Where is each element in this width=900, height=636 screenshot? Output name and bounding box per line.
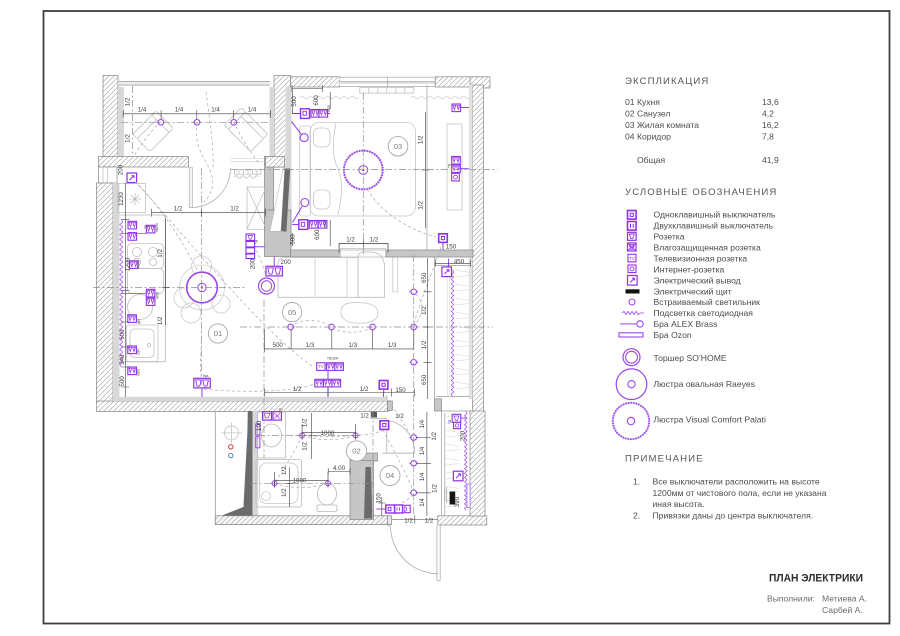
svg-text:1.: 1. bbox=[633, 477, 640, 487]
svg-text:390: 390 bbox=[454, 496, 461, 507]
svg-text:ТВ1300: ТВ1300 bbox=[327, 357, 338, 361]
svg-text:1/2: 1/2 bbox=[370, 237, 379, 244]
svg-text:1/2: 1/2 bbox=[174, 205, 183, 212]
svg-text:1230: 1230 bbox=[118, 192, 125, 206]
svg-text:05: 05 bbox=[288, 308, 296, 317]
svg-text:ТВ: ТВ bbox=[448, 420, 452, 424]
svg-text:1/2: 1/2 bbox=[293, 386, 302, 393]
svg-text:1/2: 1/2 bbox=[404, 517, 413, 524]
svg-text:1/2: 1/2 bbox=[281, 466, 288, 475]
svg-text:дух: дух bbox=[137, 319, 141, 324]
svg-text:Подсветка светодиодная: Подсветка светодиодная bbox=[654, 308, 754, 318]
svg-text:Влагозащищенная розетка: Влагозащищенная розетка bbox=[654, 242, 761, 252]
svg-text:1/2: 1/2 bbox=[395, 413, 404, 420]
svg-text:1/4: 1/4 bbox=[248, 106, 257, 113]
svg-text:Общая: Общая bbox=[637, 155, 665, 165]
svg-text:150: 150 bbox=[446, 243, 457, 250]
svg-text:Интернет-розетка: Интернет-розетка bbox=[654, 264, 725, 274]
svg-text:1/2: 1/2 bbox=[421, 306, 428, 315]
svg-text:h400: h400 bbox=[323, 221, 327, 228]
svg-text:16,2: 16,2 bbox=[762, 120, 779, 130]
svg-text:h300: h300 bbox=[137, 369, 141, 376]
svg-text:h450: h450 bbox=[156, 292, 160, 299]
svg-text:вл: вл bbox=[279, 408, 283, 412]
svg-text:1/4: 1/4 bbox=[419, 498, 426, 507]
svg-text:2.: 2. bbox=[633, 510, 640, 520]
svg-text:13,6: 13,6 bbox=[762, 97, 779, 107]
svg-text:1/4: 1/4 bbox=[175, 106, 184, 113]
svg-text:4.00: 4.00 bbox=[333, 465, 346, 472]
svg-text:500: 500 bbox=[290, 234, 297, 245]
svg-text:Метиева А.: Метиева А. bbox=[822, 594, 867, 604]
svg-text:Розетка: Розетка bbox=[654, 232, 685, 242]
svg-text:02 Санузел: 02 Санузел bbox=[625, 109, 670, 119]
svg-text:200: 200 bbox=[281, 259, 292, 266]
svg-text:1/4: 1/4 bbox=[419, 446, 426, 455]
svg-text:бра: бра bbox=[203, 374, 209, 378]
svg-text:100: 100 bbox=[256, 420, 263, 431]
svg-text:600: 600 bbox=[313, 95, 320, 106]
svg-text:200: 200 bbox=[250, 258, 257, 269]
svg-text:01 Кухня: 01 Кухня bbox=[625, 97, 660, 107]
svg-text:1/4: 1/4 bbox=[419, 419, 426, 428]
svg-text:ТВ: ТВ bbox=[448, 164, 452, 168]
svg-text:1/2: 1/2 bbox=[418, 135, 425, 144]
svg-text:ПРИМЕЧАНИЕ: ПРИМЕЧАНИЕ bbox=[625, 454, 704, 465]
svg-text:Бра ALEX Brass: Бра ALEX Brass bbox=[654, 319, 718, 329]
svg-text:Одноклавишный выключатель: Одноклавишный выключатель bbox=[654, 210, 776, 220]
svg-text:Люстра овальная Raeyes: Люстра овальная Raeyes bbox=[654, 379, 756, 389]
svg-text:03 Жилая комната: 03 Жилая комната bbox=[625, 120, 699, 130]
svg-text:600: 600 bbox=[314, 229, 321, 240]
svg-text:1/2: 1/2 bbox=[431, 431, 438, 440]
svg-text:1/2: 1/2 bbox=[281, 488, 288, 497]
svg-text:1/2: 1/2 bbox=[425, 517, 434, 524]
svg-text:1/3: 1/3 bbox=[348, 342, 357, 349]
svg-text:1/2: 1/2 bbox=[125, 134, 132, 143]
svg-text:иная высота.: иная высота. bbox=[653, 499, 705, 509]
svg-text:200: 200 bbox=[460, 430, 467, 441]
svg-text:1/4: 1/4 bbox=[138, 106, 147, 113]
svg-text:1/2: 1/2 bbox=[360, 386, 369, 393]
svg-text:4,2: 4,2 bbox=[762, 109, 774, 119]
svg-text:Телевизионная розетка: Телевизионная розетка bbox=[654, 253, 748, 263]
svg-text:1000: 1000 bbox=[293, 478, 307, 485]
svg-text:Электрический щит: Электрический щит bbox=[654, 286, 732, 296]
svg-text:500: 500 bbox=[273, 342, 284, 349]
svg-text:TV: TV bbox=[629, 256, 636, 261]
svg-text:04 Коридор: 04 Коридор bbox=[625, 132, 671, 142]
svg-text:ТВ: ТВ bbox=[255, 240, 259, 244]
svg-text:1/2: 1/2 bbox=[302, 442, 309, 451]
svg-text:1200мм от чистового пола, если: 1200мм от чистового пола, если не указан… bbox=[653, 488, 827, 498]
svg-text:650: 650 bbox=[421, 272, 428, 283]
svg-text:Люстра Visual Comfort Palati: Люстра Visual Comfort Palati bbox=[654, 415, 766, 425]
svg-text:1/2: 1/2 bbox=[125, 97, 132, 106]
svg-text:1/4: 1/4 bbox=[211, 106, 220, 113]
svg-text:Электрический вывод: Электрический вывод bbox=[654, 275, 741, 285]
svg-text:ЭКСПЛИКАЦИЯ: ЭКСПЛИКАЦИЯ bbox=[625, 76, 709, 87]
svg-text:500: 500 bbox=[119, 376, 126, 387]
svg-text:7,8: 7,8 bbox=[762, 132, 774, 142]
svg-text:1/2: 1/2 bbox=[421, 340, 428, 349]
svg-text:Выполнили:: Выполнили: bbox=[767, 594, 815, 604]
svg-text:Все выключатели расположить на: Все выключатели расположить на высоте bbox=[653, 477, 820, 487]
svg-text:1000: 1000 bbox=[321, 430, 335, 437]
svg-text:Торшер SO’HOME: Торшер SO’HOME bbox=[654, 353, 727, 363]
svg-text:1/3: 1/3 bbox=[306, 342, 315, 349]
svg-text:Сарбей А.: Сарбей А. bbox=[822, 605, 863, 615]
svg-text:1/4: 1/4 bbox=[419, 472, 426, 481]
svg-text:1/2: 1/2 bbox=[157, 316, 164, 325]
svg-text:500: 500 bbox=[291, 96, 298, 107]
svg-text:ТВ: ТВ bbox=[144, 225, 148, 229]
svg-text:1/2: 1/2 bbox=[346, 237, 355, 244]
svg-text:650: 650 bbox=[421, 374, 428, 385]
svg-text:340: 340 bbox=[119, 354, 126, 365]
svg-text:1/2: 1/2 bbox=[157, 249, 164, 258]
svg-text:450: 450 bbox=[454, 258, 465, 265]
svg-text:600: 600 bbox=[119, 329, 126, 340]
svg-text:1/2: 1/2 bbox=[431, 484, 438, 493]
svg-text:200: 200 bbox=[117, 164, 124, 175]
svg-text:02: 02 bbox=[352, 447, 360, 456]
svg-text:1/2: 1/2 bbox=[302, 418, 309, 427]
svg-text:ПЛАН ЭЛЕКТРИКИ: ПЛАН ЭЛЕКТРИКИ bbox=[769, 573, 863, 585]
svg-text:1/2: 1/2 bbox=[360, 412, 369, 419]
svg-text:ПММ: ПММ bbox=[137, 260, 141, 268]
svg-text:03: 03 bbox=[394, 142, 402, 151]
svg-text:УСЛОВНЫЕ ОБОЗНАЧЕНИЯ: УСЛОВНЫЕ ОБОЗНАЧЕНИЯ bbox=[625, 187, 777, 198]
svg-text:150: 150 bbox=[395, 387, 406, 394]
svg-text:150: 150 bbox=[376, 493, 383, 504]
svg-text:1/2: 1/2 bbox=[230, 205, 239, 212]
svg-text:1200: 1200 bbox=[125, 257, 132, 271]
svg-text:1/3: 1/3 bbox=[388, 342, 397, 349]
svg-text:01: 01 bbox=[214, 329, 222, 338]
svg-text:Бра Ozon: Бра Ozon bbox=[654, 330, 692, 340]
svg-text:1/2: 1/2 bbox=[418, 200, 425, 209]
svg-text:Встраиваемый светильник: Встраиваемый светильник bbox=[654, 297, 761, 307]
svg-text:пв450: пв450 bbox=[155, 223, 159, 232]
svg-text:04: 04 bbox=[386, 471, 394, 480]
svg-text:СВЧ: СВЧ bbox=[137, 349, 141, 355]
svg-text:Двухклавишный выключатель: Двухклавишный выключатель bbox=[654, 221, 774, 231]
svg-text:41,9: 41,9 bbox=[762, 155, 779, 165]
svg-text:Привязки даны до центра выключ: Привязки даны до центра выключателя. bbox=[653, 510, 814, 520]
